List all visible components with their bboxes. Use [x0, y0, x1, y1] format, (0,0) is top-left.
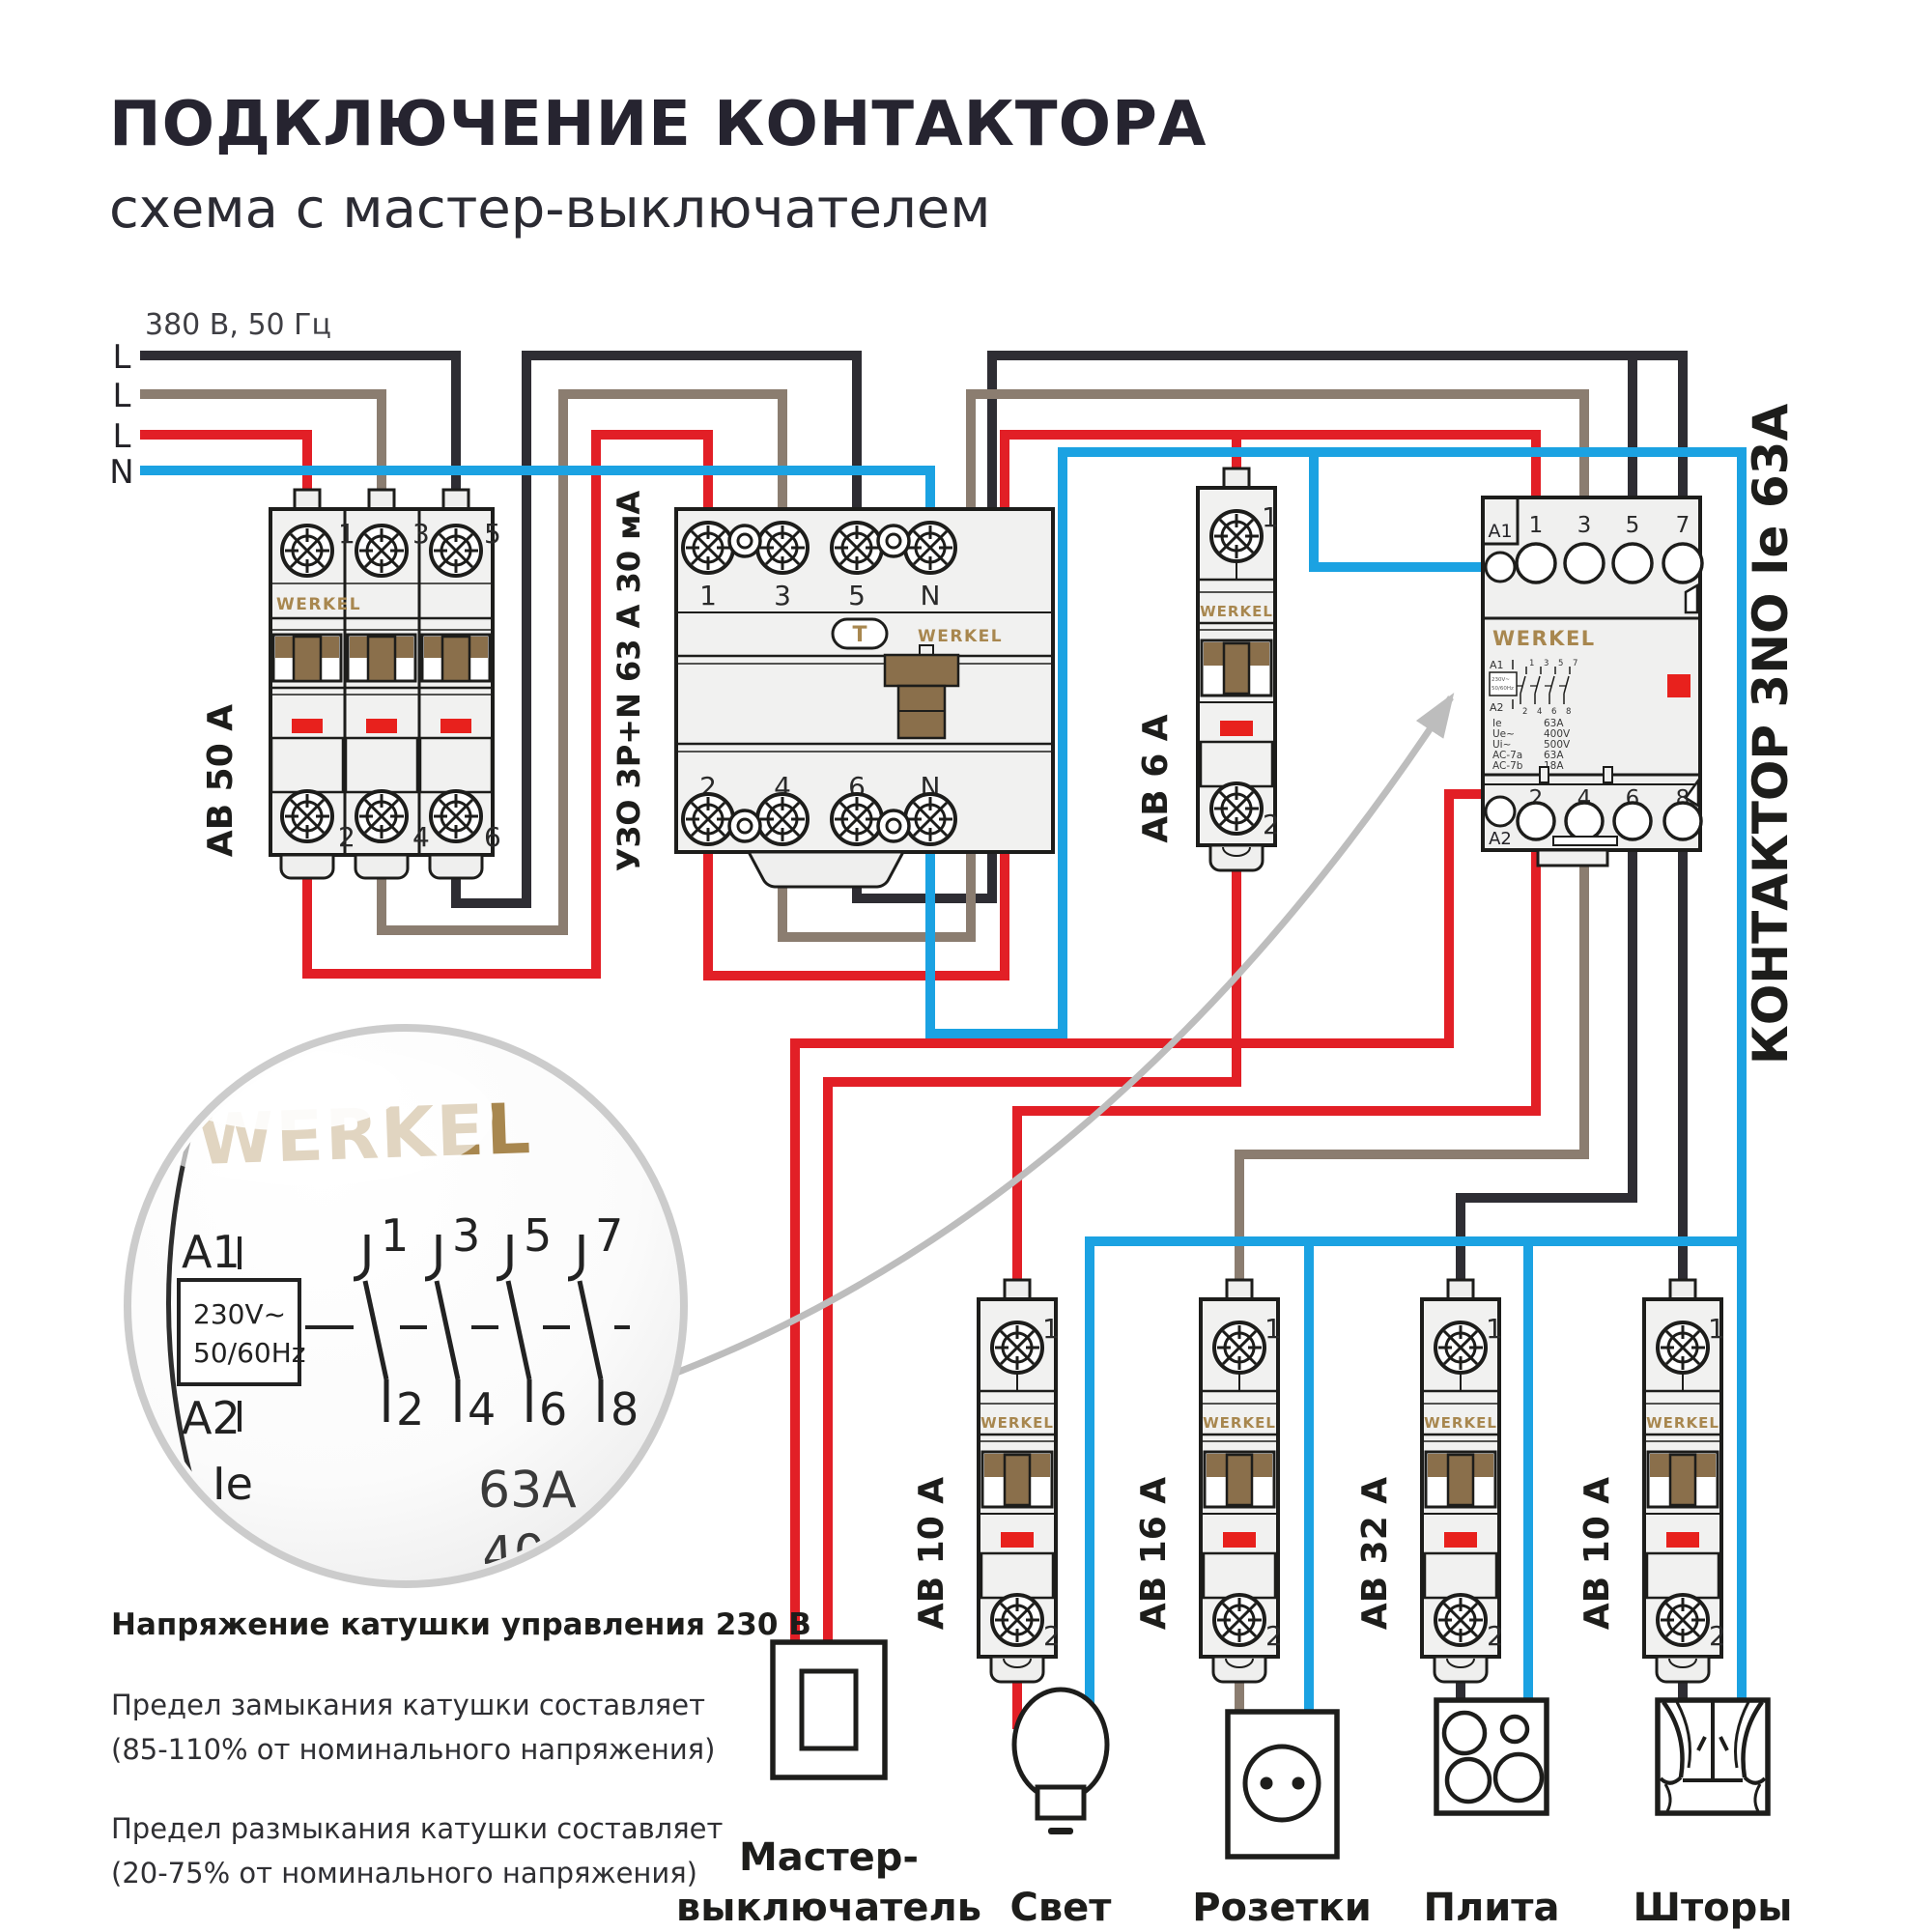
mini-coil-voltage: 230V~ — [1492, 677, 1510, 683]
master-switch-label-2: выключатель — [676, 1886, 981, 1930]
master-switch-label-1: Мастер- — [739, 1835, 919, 1880]
light-label: Свет — [1010, 1886, 1113, 1930]
ab50-brand: WERKEL — [276, 595, 361, 614]
breaker-ab6 — [1198, 469, 1280, 870]
magnifier-a1: A1 — [182, 1226, 241, 1278]
mini-a1: A1 — [1490, 659, 1504, 671]
magnifier-voltage: 400V — [481, 1520, 614, 1585]
mag-contact-3: 3 — [452, 1209, 480, 1262]
breaker-curtains — [1644, 1280, 1726, 1682]
mag-contact-6: 6 — [539, 1383, 567, 1435]
breaker-light — [979, 1280, 1061, 1682]
breaker-sockets — [1201, 1280, 1283, 1682]
light-bulb-icon — [1014, 1690, 1107, 1800]
stove-label: Плита — [1424, 1886, 1560, 1930]
line-label-l3: L — [113, 417, 131, 456]
mag-contact-7: 7 — [595, 1209, 623, 1262]
curtains-label: Шторы — [1634, 1886, 1793, 1930]
load-light: Свет — [1010, 1690, 1113, 1930]
uzo-terminal-5: 5 — [848, 580, 866, 611]
contactor-coil-a1-label: A1 — [1488, 521, 1512, 542]
mag-contact-5: 5 — [524, 1209, 552, 1262]
notes-block: Напряжение катушки управления 230 В Пред… — [111, 1607, 811, 1889]
breaker-ab50: 1 3 5 WERKEL 2 4 6 АВ 50 — [201, 490, 501, 878]
magnifier-coil-freq: 50/60Hz — [193, 1337, 305, 1369]
mag-contact-1: 1 — [381, 1209, 409, 1262]
mini-5: 5 — [1558, 659, 1563, 668]
magnifier-ball: WERKEL A1 230V~ 50/60Hz A2 1 3 5 7 2 4 6… — [126, 1028, 684, 1585]
load-stove: Плита — [1424, 1700, 1560, 1930]
contactor-coil-a2-label: A2 — [1489, 829, 1512, 849]
mini-2: 2 — [1522, 707, 1527, 717]
breaker-light-label: АВ 10 А — [912, 1477, 952, 1630]
uzo-test-button-label: T — [852, 623, 867, 647]
uzo-label: УЗО 3P+N 63 А 30 мА — [611, 491, 647, 872]
notes-open-2: (20-75% от номинального напряжения) — [111, 1857, 697, 1889]
mini-a2: A2 — [1490, 701, 1504, 714]
mini-3: 3 — [1544, 659, 1548, 668]
ab50-levers — [273, 635, 490, 681]
line-label-l2: L — [113, 377, 131, 415]
contactor-terminal-5: 5 — [1626, 513, 1640, 538]
contactor-indicator — [1667, 674, 1690, 697]
supply-rating: 380 В, 50 Гц — [145, 308, 331, 342]
supply-labels: 380 В, 50 Гц L L L N — [109, 308, 331, 492]
contactor-terminal-1: 1 — [1529, 513, 1544, 538]
load-curtains: Шторы — [1634, 1700, 1793, 1930]
magnifier-a2: A2 — [182, 1392, 241, 1444]
uzo-terminal-3: 3 — [774, 580, 791, 611]
sockets-label: Розетки — [1192, 1886, 1372, 1930]
contactor-terminal-7: 7 — [1676, 513, 1690, 538]
ab50-terminal-3: 3 — [412, 518, 430, 550]
uzo-terminal-1: 1 — [699, 580, 717, 611]
ab50-terminal-1: 1 — [338, 518, 355, 550]
breaker-stove-label: АВ 32 А — [1355, 1477, 1395, 1630]
wire-blue-branch-coil-a1 — [1314, 452, 1490, 567]
mag-contact-2: 2 — [396, 1383, 424, 1435]
wire-black-contactor-to-ab32 — [1461, 845, 1633, 1285]
diagram-svg: 1 WERKEL 2 — [0, 0, 1932, 1932]
contactor-coil-a1-terminal — [1486, 553, 1515, 582]
wire-black-branch-contactor-7 — [1633, 355, 1683, 512]
mini-coil-freq: 50/60Hz — [1492, 686, 1514, 692]
contactor-coil-a2-terminal — [1486, 797, 1515, 826]
ab6-label: АВ 6 А — [1136, 714, 1176, 842]
mini-6: 6 — [1551, 707, 1556, 717]
breaker-curtains-label: АВ 10 А — [1577, 1477, 1617, 1630]
page-subtitle: схема с мастер-выключателем — [109, 178, 990, 241]
notes-heading: Напряжение катушки управления 230 В — [111, 1607, 811, 1642]
mini-1: 1 — [1529, 659, 1534, 668]
magnifier-coil-voltage: 230V~ — [193, 1298, 286, 1330]
ab50-terminal-6: 6 — [484, 821, 501, 853]
wire-brown-bus-to-ab50 — [140, 394, 382, 526]
page-title: ПОДКЛЮЧЕНИЕ КОНТАКТОРА — [109, 89, 1207, 160]
contactor-label: КОНТАКТОР 3NO Ie 63А — [1743, 404, 1799, 1065]
load-master-switch: Мастер- выключатель — [676, 1642, 981, 1930]
notes-close-1: Предел замыкания катушки составляет — [111, 1689, 705, 1721]
ab50-label: АВ 50 А — [201, 704, 241, 857]
ab50-terminal-2: 2 — [338, 821, 355, 853]
uzo-brand: WERKEL — [918, 627, 1003, 646]
mag-contact-4: 4 — [468, 1383, 496, 1435]
mini-8: 8 — [1566, 707, 1571, 717]
spec-key-4: AC-7b — [1492, 760, 1523, 772]
notes-open-1: Предел размыкания катушки составляет — [111, 1812, 724, 1845]
breaker-stove — [1422, 1280, 1504, 1682]
contactor: A1 1 3 5 7 WERKEL A1 230V~ 50/60Hz A2 — [1483, 404, 1799, 1065]
load-sockets: Розетки — [1192, 1712, 1372, 1930]
notes-close-2: (85-110% от номинального напряжения) — [111, 1733, 715, 1766]
line-label-l1: L — [113, 338, 131, 377]
ab50-terminal-4: 4 — [412, 821, 430, 853]
wiring-diagram-page: 1 WERKEL 2 — [0, 0, 1932, 1932]
rcd-uzo: 1 3 5 N T WERKEL 2 4 6 N УЗО 3P+N 63 А 3… — [611, 491, 1053, 887]
line-label-n: N — [109, 453, 133, 492]
mini-4: 4 — [1537, 707, 1542, 717]
ab50-terminal-5: 5 — [484, 518, 501, 550]
contactor-terminal-3: 3 — [1577, 513, 1592, 538]
mini-7: 7 — [1573, 659, 1577, 668]
mag-contact-8: 8 — [611, 1383, 639, 1435]
contactor-brand: WERKEL — [1492, 627, 1596, 650]
uzo-terminal-n-top: N — [921, 580, 941, 611]
breaker-sockets-label: АВ 16 А — [1134, 1477, 1174, 1630]
magnifier-ie-value: 63A — [478, 1462, 577, 1520]
